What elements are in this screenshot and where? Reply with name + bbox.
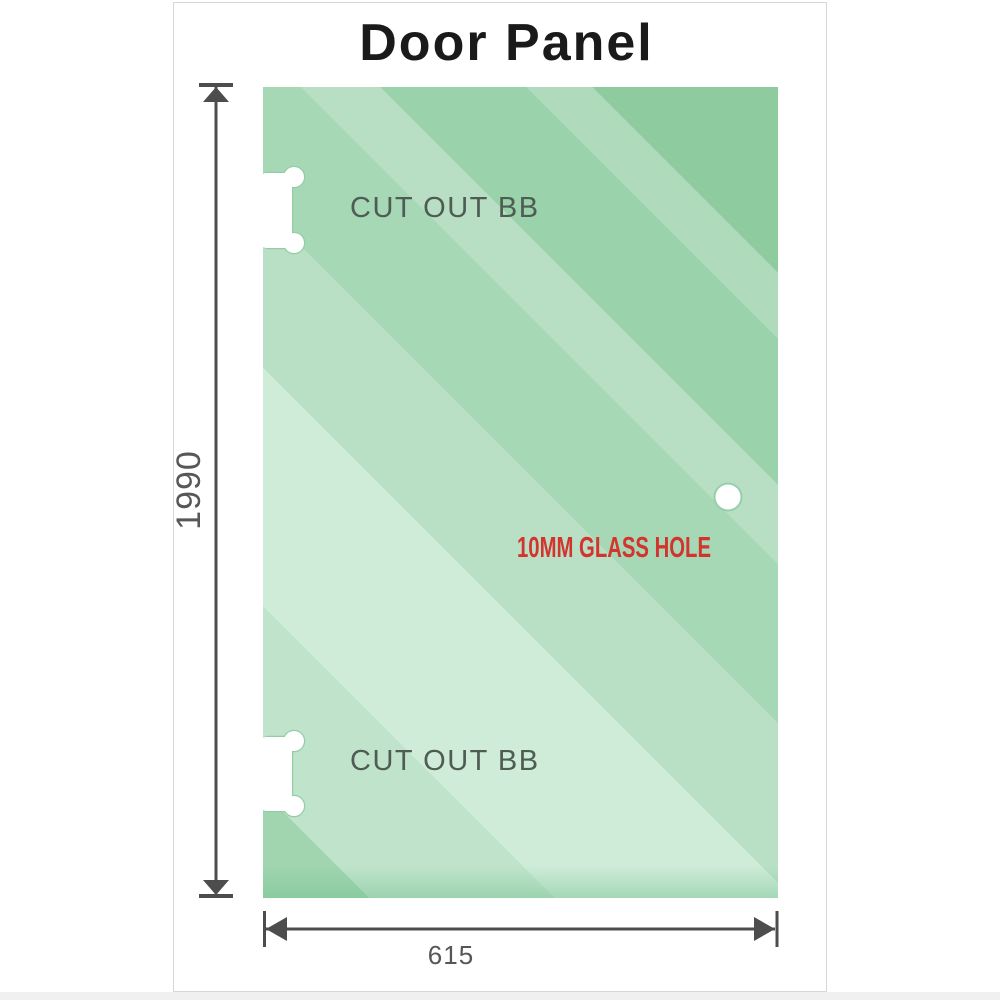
glass-hole [714,483,743,512]
product-diagram-image: Door Panel [0,0,1000,1000]
width-dim-right-tick [776,911,779,947]
height-dim-top-cap [199,83,233,87]
hinge-cutout-bottom [261,731,304,816]
width-dim-left-tick [263,911,266,947]
arrow-up-icon [203,87,229,102]
diagram-graphics [0,0,1000,1000]
cutout-bottom-label: CUT OUT BB [350,744,540,778]
height-dimension-label: 1990 [169,430,209,550]
width-dimension-line [263,911,779,947]
glass-hole-circle [716,485,741,510]
height-dim-shaft [215,87,218,894]
arrow-down-icon [203,880,229,895]
page-bottom-strip [0,992,1000,1000]
width-dimension-label: 615 [401,941,501,969]
arrow-left-icon [266,917,287,941]
width-dim-shaft [266,928,775,931]
hinge-cutout-top [261,167,304,253]
glass-hole-label: 10MM GLASS HOLE [517,532,711,564]
arrow-right-icon [754,917,775,941]
cutout-top-label: CUT OUT BB [350,191,540,225]
